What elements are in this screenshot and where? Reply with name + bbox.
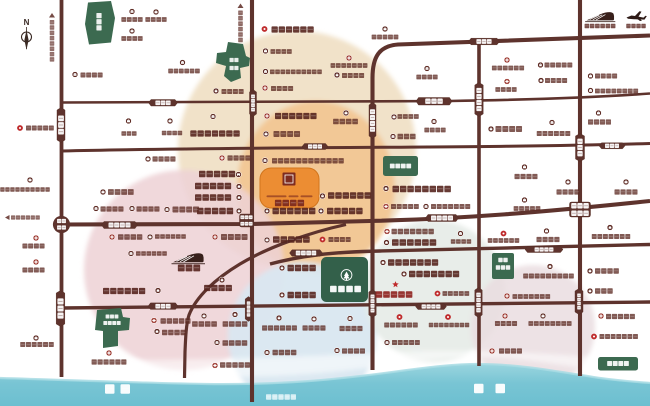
- svg-text:N: N: [24, 18, 30, 27]
